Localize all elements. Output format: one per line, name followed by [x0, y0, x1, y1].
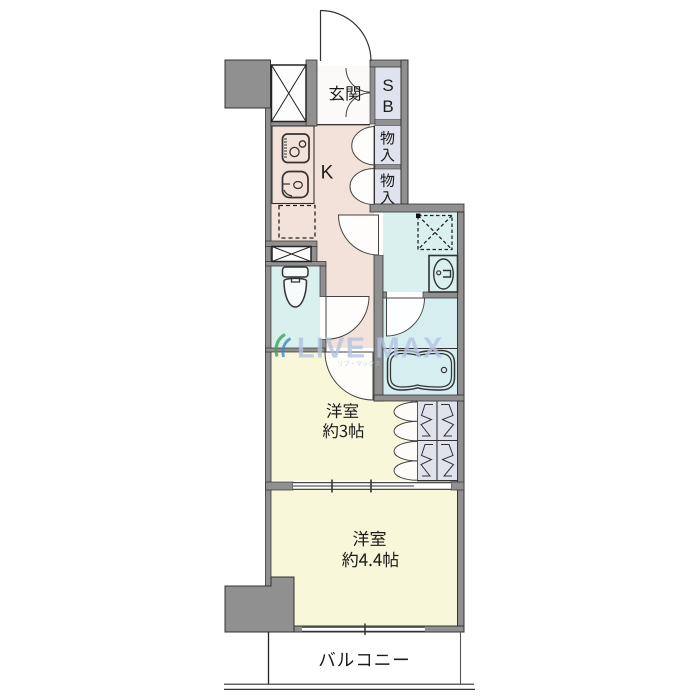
- svg-text:B: B: [382, 97, 393, 116]
- svg-text:K: K: [321, 163, 334, 184]
- svg-text:LIVE MAX: LIVE MAX: [297, 333, 444, 365]
- svg-text:S: S: [382, 76, 393, 95]
